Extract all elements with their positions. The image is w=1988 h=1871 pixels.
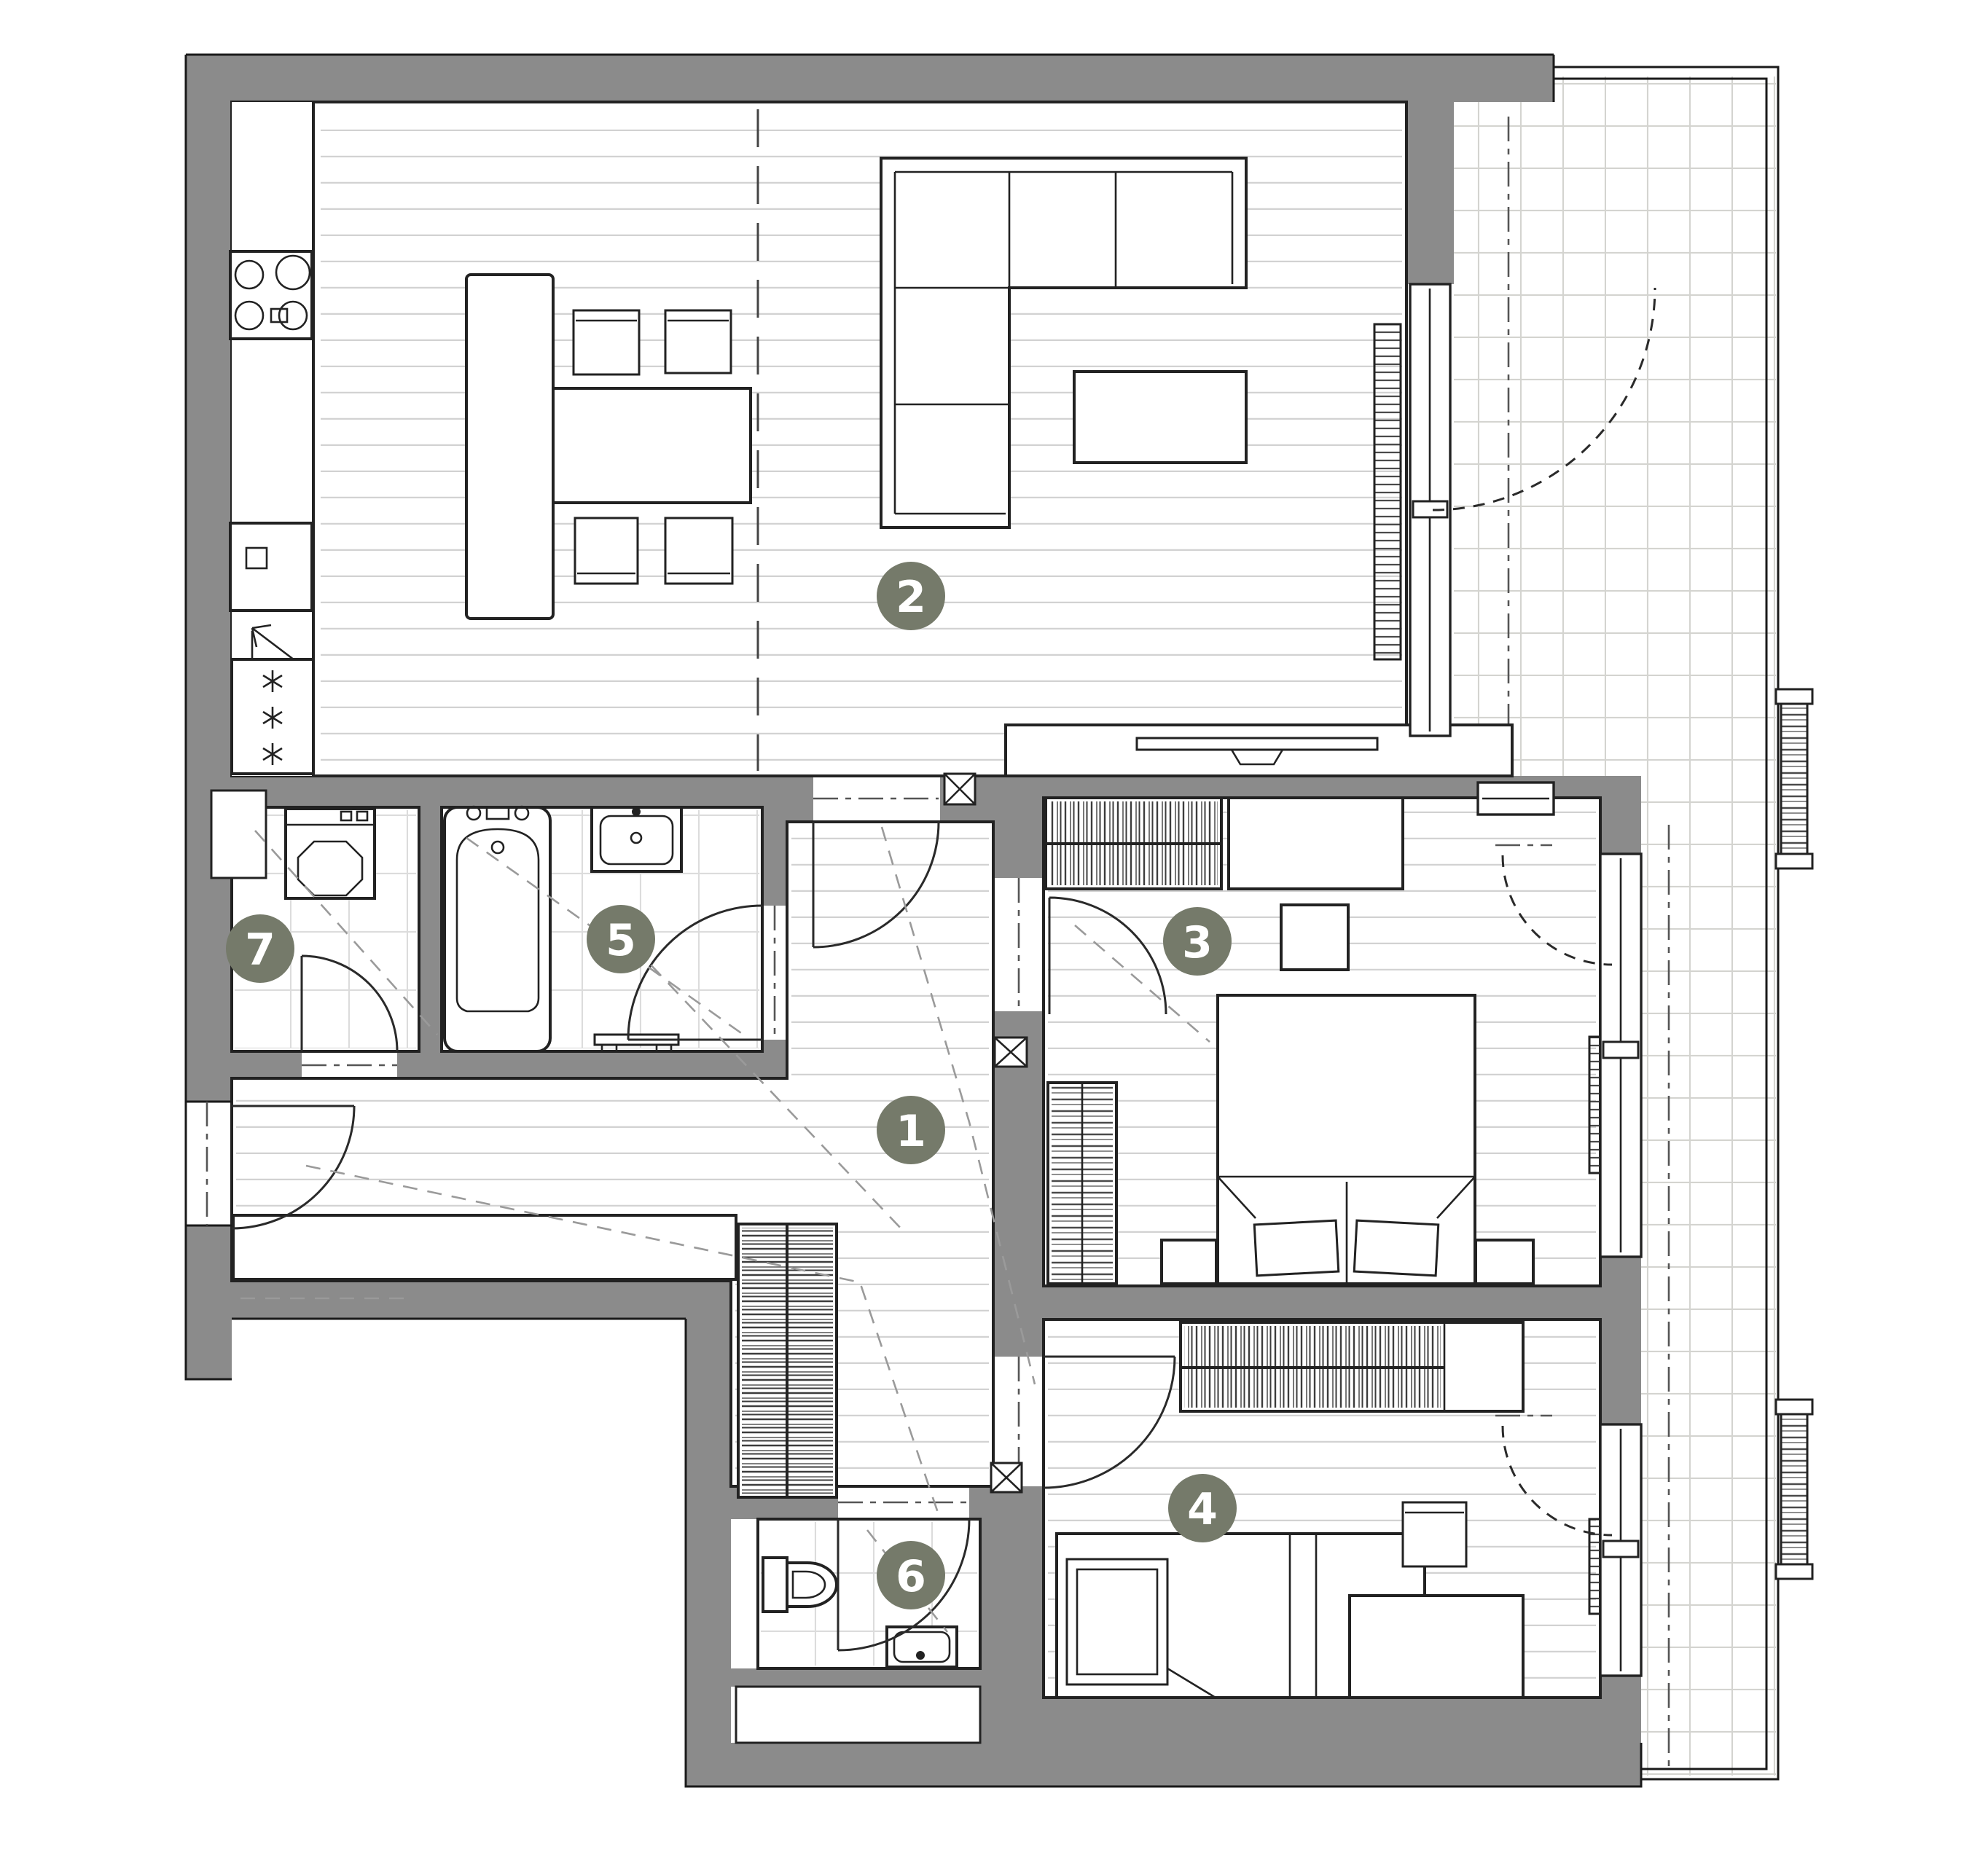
kitchen-sink-icon: [230, 523, 312, 611]
wall-post-icon: [991, 1463, 1022, 1492]
room-badge-6-label: 6: [896, 1551, 926, 1602]
wardrobe-hanging-hallway: [738, 1224, 837, 1497]
room-badge-5-label: 5: [606, 915, 636, 966]
freezer-icon: [232, 659, 313, 774]
railing-bracket-icon: [1776, 1400, 1812, 1579]
stove-icon: [230, 251, 312, 339]
window-balcony-step: [1478, 782, 1554, 815]
floor-plan-drawing: 1 2 3 4 5 6 7: [0, 0, 1988, 1871]
chair-room4: [1403, 1502, 1466, 1566]
nightstand-right: [1476, 1240, 1533, 1284]
bathroom-sink-icon: [592, 807, 681, 871]
shaft-niche: [736, 1687, 980, 1743]
floor-plan-page: 1 2 3 4 5 6 7: [0, 0, 1988, 1871]
room-badge-4-label: 4: [1187, 1484, 1218, 1535]
balcony-tile-floor-lower: [1641, 776, 1776, 1776]
washing-machine-icon: [286, 809, 375, 898]
railing-bracket-icon: [1776, 689, 1812, 868]
nightstand-left: [1162, 1240, 1216, 1284]
shelf-cabinet-room3: [1048, 1083, 1116, 1284]
room-badge-1-label: 1: [896, 1106, 926, 1157]
dining-table: [553, 388, 751, 503]
coffee-table: [1074, 372, 1246, 463]
dresser-room3: [1229, 798, 1403, 889]
window-bedroom3-balcony-door: [1600, 854, 1641, 1257]
radiator-icon: [1374, 324, 1401, 659]
wc-sink-icon: [887, 1627, 957, 1667]
kitchen-counter: [230, 102, 313, 776]
desk-room4: [1350, 1596, 1523, 1698]
room-badge-4: 4: [1168, 1474, 1237, 1542]
room-badge-2: 2: [877, 562, 945, 630]
kitchen-island: [466, 275, 553, 619]
hallway-sideboard: [233, 1215, 736, 1279]
room-badge-1: 1: [877, 1096, 945, 1164]
room-badge-2-label: 2: [896, 572, 926, 623]
room-badge-7-label: 7: [245, 925, 275, 976]
stool-room3: [1281, 905, 1348, 970]
wardrobe-hanging-room4: [1181, 1322, 1523, 1411]
window-bedroom4-balcony-door: [1600, 1424, 1641, 1676]
room-badge-3-label: 3: [1182, 917, 1213, 968]
room-badge-5: 5: [587, 905, 655, 973]
wall-post-icon: [944, 774, 975, 804]
bathtub-icon: [445, 807, 550, 1051]
room-badge-7: 7: [226, 914, 294, 983]
double-bed: [1218, 995, 1475, 1284]
room-badge-6: 6: [877, 1541, 945, 1609]
wardrobe-hanging-room3: [1046, 798, 1221, 889]
balcony-tile-floor-upper: [1454, 77, 1776, 776]
wall-post-icon: [995, 1038, 1027, 1067]
room-badge-3: 3: [1163, 907, 1232, 976]
